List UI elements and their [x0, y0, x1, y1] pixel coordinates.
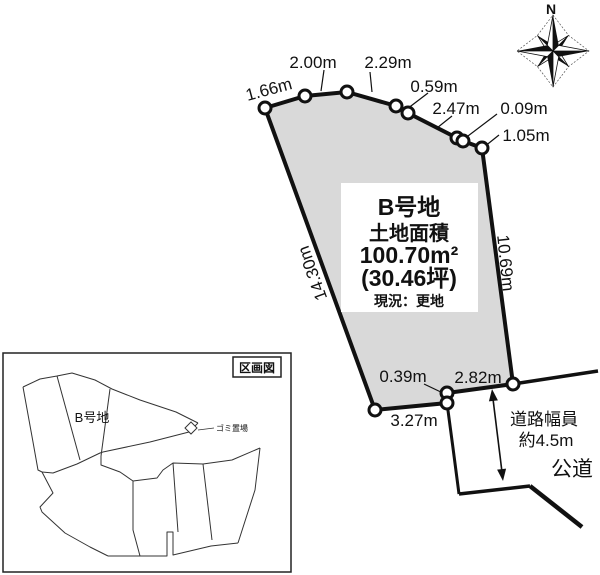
dim-top-4: 0.59m — [410, 77, 457, 96]
road-south-edge-line — [459, 486, 530, 494]
plot-area-tsubo: (30.46坪) — [361, 265, 457, 291]
inset-plot-b-label: B号地 — [75, 410, 110, 425]
inset-map: ゴミ置場 B号地 区画図 — [3, 353, 291, 572]
diagram-canvas: 1.66m 2.00m 2.29m 0.59m 2.47m 0.09m 1.05… — [0, 0, 600, 575]
dim-top-3: 2.29m — [364, 53, 411, 72]
inset-title: 区画図 — [239, 361, 275, 375]
compass-rose: N — [517, 1, 589, 87]
road-width-label: 道路幅員 — [510, 410, 578, 429]
plot-status: 現況：更地 — [374, 293, 444, 309]
road-width-value: 約4.5m — [519, 431, 574, 450]
dim-top-2: 2.00m — [289, 53, 336, 72]
dim-top-6: 0.09m — [500, 99, 547, 118]
plot-name: B号地 — [378, 194, 441, 220]
dim-bottom-mid: 0.39m — [379, 367, 426, 386]
dim-bottom-left: 3.27m — [390, 411, 437, 430]
dim-top-7: 1.05m — [502, 126, 549, 145]
road-south-diagonal-line — [530, 486, 582, 527]
dim-top-5: 2.47m — [432, 99, 479, 118]
public-road-label: 公道 — [551, 458, 593, 481]
garbage-spot-label: ゴミ置場 — [216, 423, 248, 433]
dim-bottom-right: 2.82m — [454, 368, 501, 387]
compass-cardinal-points — [517, 15, 589, 87]
road-west-edge-line — [447, 403, 459, 494]
land-plot-diagram: 1.66m 2.00m 2.29m 0.59m 2.47m 0.09m 1.05… — [0, 0, 600, 575]
road-width-arrow — [489, 389, 506, 481]
plot-info-box: B号地 土地面積 100.70m² (30.46坪) 現況：更地 — [341, 183, 478, 312]
compass-north-label: N — [546, 1, 556, 17]
road-north-edge-line — [513, 371, 598, 384]
inset-border — [3, 353, 291, 572]
